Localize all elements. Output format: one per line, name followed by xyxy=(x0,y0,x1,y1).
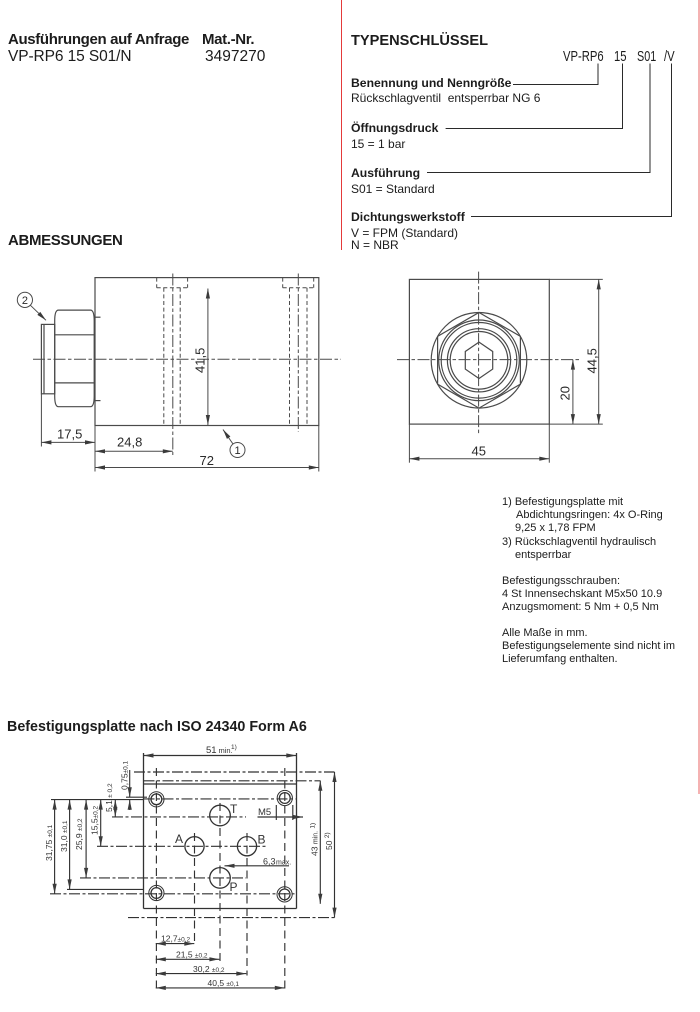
svg-text:50 2): 50 2) xyxy=(324,832,334,850)
svg-text:15,5±0,2: 15,5±0,2 xyxy=(90,805,100,835)
svg-text:43 min. 1): 43 min. 1) xyxy=(310,823,320,856)
svg-text:21,5 ±0,2: 21,5 ±0,2 xyxy=(176,950,208,960)
svg-text:30,2 ±0,2: 30,2 ±0,2 xyxy=(193,964,225,974)
svg-text:41,5: 41,5 xyxy=(193,348,208,373)
svg-text:17,5: 17,5 xyxy=(57,427,82,442)
svg-text:72: 72 xyxy=(200,453,214,468)
svg-text:31,0 ±0,1: 31,0 ±0,1 xyxy=(59,820,69,852)
svg-text:M5: M5 xyxy=(258,807,271,818)
svg-text:45: 45 xyxy=(472,444,486,459)
svg-text:20: 20 xyxy=(558,386,573,400)
svg-text:max.: max. xyxy=(276,860,291,867)
svg-text:44,5: 44,5 xyxy=(585,348,600,373)
svg-text:51: 51 xyxy=(206,745,217,756)
svg-text:0,75±0,1: 0,75±0,1 xyxy=(120,760,130,790)
svg-text:24,8: 24,8 xyxy=(117,435,142,450)
svg-text:12,7±0,2: 12,7±0,2 xyxy=(161,934,191,944)
svg-text:T: T xyxy=(230,802,238,816)
svg-text:1: 1 xyxy=(234,445,240,457)
svg-text:31,75 ±0,1: 31,75 ±0,1 xyxy=(44,824,54,861)
svg-text:25,9 ±0,2: 25,9 ±0,2 xyxy=(74,818,84,850)
svg-text:6,3: 6,3 xyxy=(263,857,276,867)
svg-text:5,1 ± 0,2: 5,1 ± 0,2 xyxy=(104,783,114,812)
svg-text:2: 2 xyxy=(22,295,28,307)
svg-text:B: B xyxy=(258,833,266,847)
svg-text:40,5 ±0,1: 40,5 ±0,1 xyxy=(208,978,240,988)
svg-text:1): 1) xyxy=(231,744,237,751)
svg-text:A: A xyxy=(175,832,183,846)
svg-text:P: P xyxy=(230,880,238,894)
